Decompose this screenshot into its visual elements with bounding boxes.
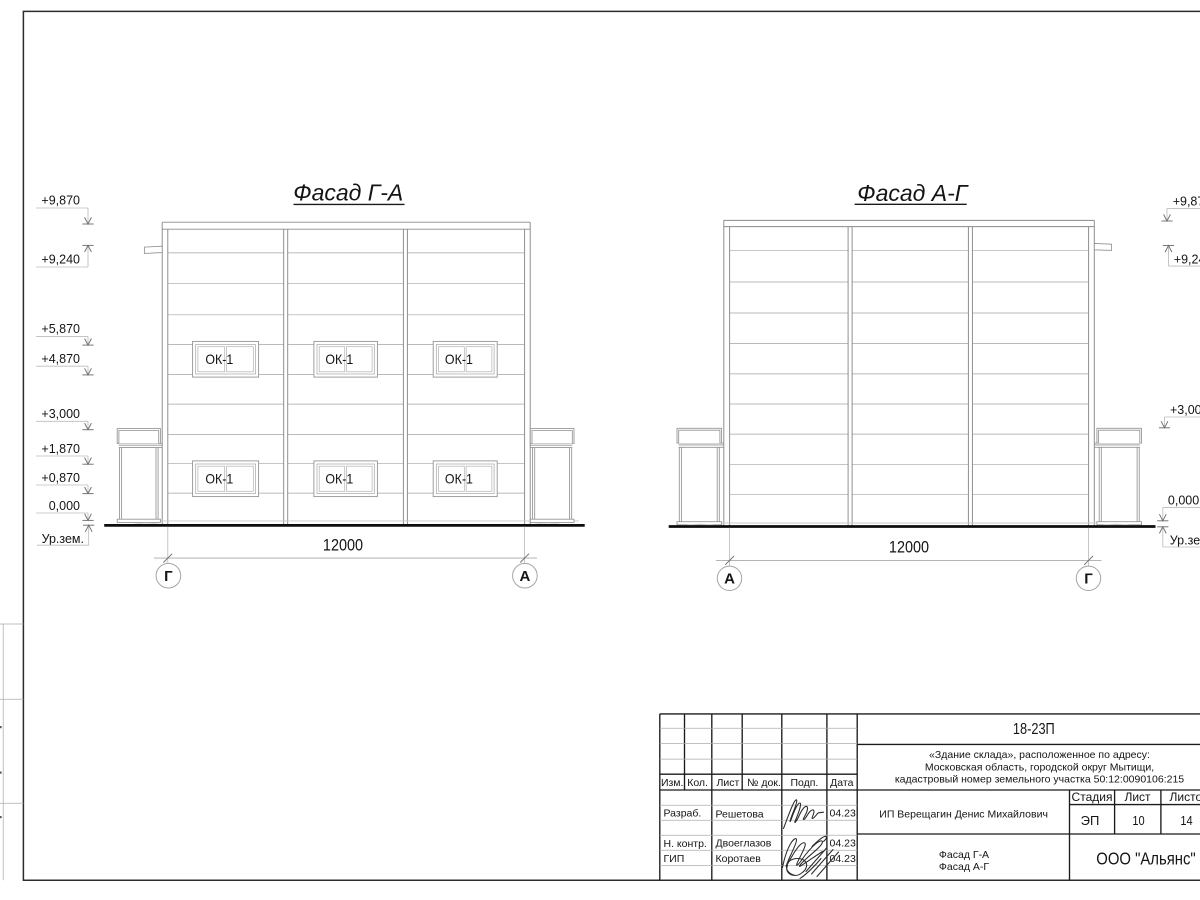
svg-text:Фасад Г-А: Фасад Г-А [939,849,989,861]
svg-text:Кол.: Кол. [687,777,708,789]
svg-text:14: 14 [1180,813,1193,828]
svg-text:№ док.: № док. [747,777,781,789]
svg-text:кадастровый номер земельного у: кадастровый номер земельного участка 50:… [895,774,1184,786]
svg-text:Изм.: Изм. [661,777,684,789]
svg-text:18-23П: 18-23П [1013,721,1055,739]
svg-text:12000: 12000 [323,536,363,554]
svg-text:+3,000: +3,000 [1170,403,1200,417]
svg-text:Фасад А-Г: Фасад А-Г [939,861,989,873]
svg-text:Н. контр.: Н. контр. [664,838,707,850]
svg-text:ИП Верещагин Денис Михайлович: ИП Верещагин Денис Михайлович [879,809,1048,821]
svg-text:12000: 12000 [889,538,929,556]
svg-text:ООО "Альянс": ООО "Альянс" [1096,849,1196,868]
svg-text:ОК-1: ОК-1 [205,471,233,487]
svg-text:+0,870: +0,870 [41,471,80,485]
svg-text:Двоеглазов: Двоеглазов [716,838,772,850]
svg-text:0,000: 0,000 [1168,494,1199,508]
svg-text:0,000: 0,000 [49,499,80,513]
svg-text:Московская область, городской: Московская область, городской округ Мыти… [925,761,1154,773]
svg-text:«Здание склада», расположенное: «Здание склада», расположенное по адресу… [929,749,1150,761]
svg-text:+9,870: +9,870 [41,194,80,208]
svg-text:А: А [724,571,735,588]
svg-text:+5,870: +5,870 [41,322,80,336]
svg-text:Г: Г [164,568,173,585]
svg-text:Лист: Лист [1124,790,1151,804]
svg-text:Листов: Листов [1170,790,1200,804]
svg-text:ОК-1: ОК-1 [445,352,473,368]
svg-text:+3,000: +3,000 [41,407,80,421]
svg-text:ОК-1: ОК-1 [325,471,353,487]
svg-text:04.23: 04.23 [830,838,856,850]
svg-text:04.23: 04.23 [830,808,856,820]
svg-text:10: 10 [1132,813,1145,828]
svg-text:ОК-1: ОК-1 [445,471,473,487]
svg-text:Ур.зем.: Ур.зем. [1170,533,1200,547]
svg-text:ЭП: ЭП [1081,813,1100,828]
svg-text:+9,240: +9,240 [41,252,80,266]
svg-text:Решетова: Решетова [716,809,764,821]
svg-text:+1,870: +1,870 [41,442,80,456]
svg-text:А: А [519,568,530,585]
svg-text:+9,870: +9,870 [1173,195,1200,209]
svg-text:+9,240: +9,240 [1174,253,1200,267]
svg-text:Разраб.: Разраб. [664,808,702,820]
svg-text:+4,870: +4,870 [41,352,80,366]
svg-text:Ур.зем.: Ур.зем. [42,532,84,546]
svg-text:Фасад Г-А: Фасад Г-А [293,180,403,206]
svg-text:ОК-1: ОК-1 [325,352,353,368]
svg-text:ОК-1: ОК-1 [205,352,233,368]
svg-text:Г: Г [1084,571,1093,588]
svg-text:04.23: 04.23 [830,853,856,865]
svg-text:ГИП: ГИП [664,853,685,865]
svg-text:Коротаев: Коротаев [716,853,762,865]
svg-text:Фасад А-Г: Фасад А-Г [857,180,968,206]
svg-text:Подп.: Подп. [790,777,818,789]
svg-text:Лист: Лист [716,777,739,789]
svg-text:Дата: Дата [830,777,853,789]
svg-text:Стадия: Стадия [1072,790,1113,804]
